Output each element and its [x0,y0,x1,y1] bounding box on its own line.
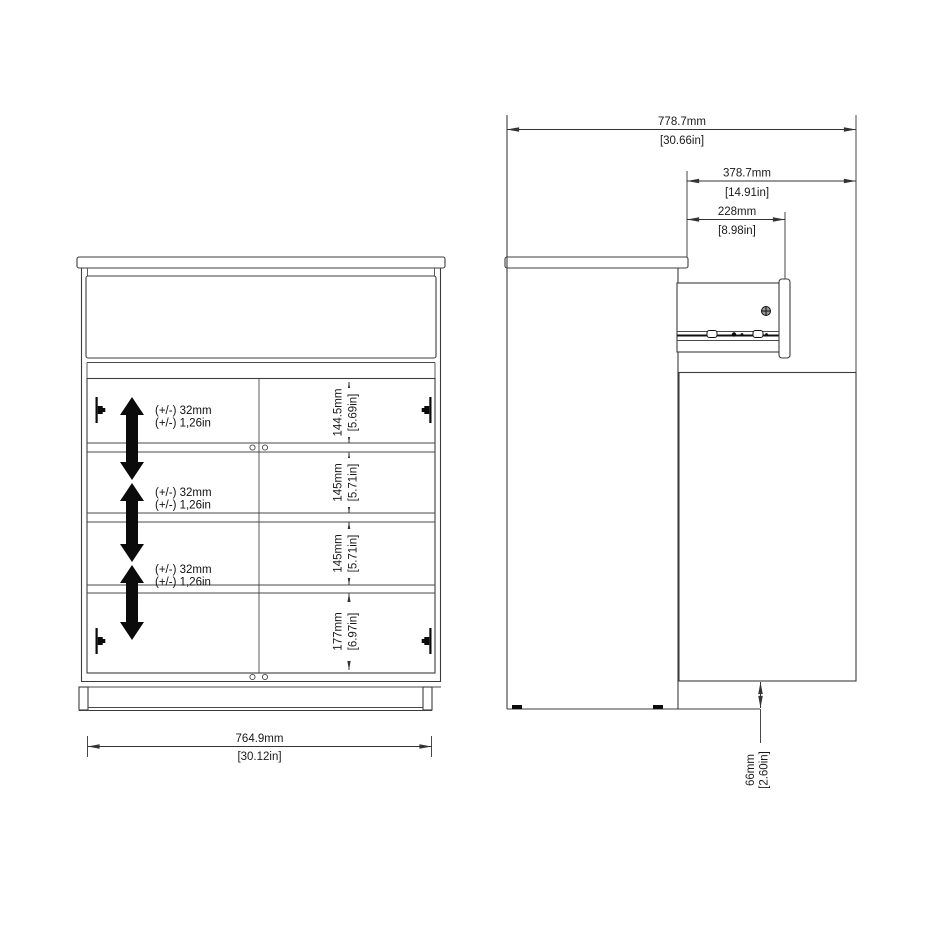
double-arrow-icon [120,565,144,640]
dim-text-in: [30.66in] [660,135,704,147]
shelf-pin-hole [262,674,267,679]
shelf-pin-hole [262,445,267,450]
dim-text-in: [6.97in] [348,613,360,651]
adjust-label-in: (+/-) 1,26in [155,500,211,512]
dim-text-mm: 764.9mm [236,733,284,745]
width-dimension: 764.9mm [30.12in] [88,733,432,763]
dim-text-in: [2.60in] [759,751,771,789]
shelf-pin-hole [250,674,255,679]
drawer-extension-dimension: 228mm [8.98in] [687,206,785,237]
dim-text-in: [5.71in] [348,464,360,502]
dim-text-mm: 228mm [718,206,756,218]
dim-text-mm: 145mm [333,534,345,572]
double-arrow-icon [120,397,144,480]
slide-stud [765,333,768,336]
dim-text-in: [5.71in] [348,535,360,573]
hinge-icon [96,628,106,654]
slide-stud [741,333,744,336]
adjust-label-mm: (+/-) 32mm [155,487,212,499]
dim-text-mm: 378.7mm [723,168,771,180]
right-foot [423,687,432,710]
dim-text-mm: 778.7mm [658,116,706,128]
left-foot [79,687,88,710]
shelf-adjust-arrows [120,397,144,640]
back-foot [512,705,522,709]
slide-stud [732,332,736,336]
dim-text-mm: 177mm [333,612,345,650]
dim-text-in: [5.69in] [348,394,360,432]
drawer-box-side [677,283,780,352]
compartment-height-dimensions: 144.5mm [5.69in] 145mm [5.71in] 145mm [5… [333,382,365,670]
dim-text-in: [14.91in] [725,187,769,199]
front-view: (+/-) 32mm (+/-) 1,26in (+/-) 32mm (+/-)… [77,257,445,763]
side-view: 778.7mm [30.66in] 378.7mm [14.91in] 228m… [505,115,856,798]
technical-drawing-page: (+/-) 32mm (+/-) 1,26in (+/-) 32mm (+/-)… [0,0,945,945]
adjust-label-in: (+/-) 1,26in [155,418,211,430]
slide-roller [753,331,763,338]
floor-clearance-dimension: 66mm [2.60in] [745,682,774,798]
screw-icon [762,307,771,316]
top-panel [77,257,445,268]
dim-text-mm: 66mm [745,754,757,786]
total-depth-dimension: 778.7mm [30.66in] [507,116,856,147]
dim-text-mm: 145mm [333,463,345,501]
shelves [87,443,435,680]
open-door-panel [679,373,856,682]
drawer-front [86,276,436,358]
drawer-front-side [779,279,790,358]
adjust-label-mm: (+/-) 32mm [155,564,212,576]
furniture-dimension-drawing: (+/-) 32mm (+/-) 1,26in (+/-) 32mm (+/-)… [0,0,945,945]
dim-text-mm: 144.5mm [333,389,345,437]
adjust-label-mm: (+/-) 32mm [155,405,212,417]
shelf-pin-hole [250,445,255,450]
hinge-icon [422,628,432,654]
open-drawer [677,279,790,358]
top-panel-side [505,257,688,268]
adjust-label-in: (+/-) 1,26in [155,577,211,589]
hinge-icons [96,397,432,654]
hinge-icon [96,397,106,423]
dim-text-in: [8.98in] [718,225,756,237]
front-foot [653,705,663,709]
dim-text-in: [30.12in] [237,751,281,763]
open-door-depth-dimension: 378.7mm [14.91in] [687,168,856,200]
double-arrow-icon [120,483,144,562]
slide-roller [707,331,717,338]
hinge-icon [422,397,432,423]
shelf-adjust-labels: (+/-) 32mm (+/-) 1,26in (+/-) 32mm (+/-)… [155,405,212,589]
